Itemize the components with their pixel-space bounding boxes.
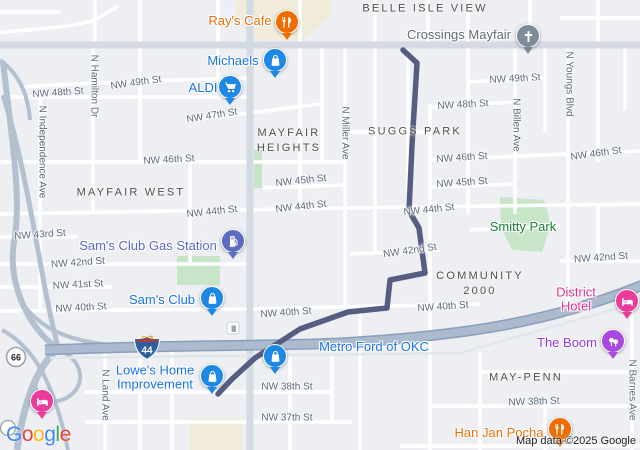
pin-tail (225, 98, 235, 105)
poi-label-sams-club[interactable]: Sam's Club (129, 293, 195, 307)
poi-label-lowes-home-improvement[interactable]: Lowe's Home Improvement (116, 364, 194, 393)
poi-label-sams-club-gas-station[interactable]: Sam's Club Gas Station (79, 239, 217, 253)
gas-icon (227, 235, 240, 248)
poi-pin-the-boom[interactable] (601, 329, 625, 353)
poi-pin-metro-ford-of-okc[interactable] (263, 344, 287, 368)
restaurant-icon (281, 16, 294, 29)
poi-label-district-hotel[interactable]: District Hotel (544, 286, 608, 315)
pin-tail (270, 367, 280, 374)
pin-tail (207, 387, 217, 394)
poi-pin-sams-club[interactable] (200, 286, 224, 310)
poi-pin-crossings-mayfair[interactable] (516, 24, 540, 48)
google-logo[interactable]: Google (6, 423, 71, 447)
poi-label-aldi[interactable]: ALDI (189, 81, 218, 95)
poi-label-crossings-mayfair[interactable]: Crossings Mayfair (407, 28, 511, 42)
cart-icon (224, 81, 237, 94)
poi-label-metro-ford-of-okc[interactable]: Metro Ford of OKC (319, 340, 429, 354)
poi-pin-rays-cafe[interactable] (275, 10, 299, 34)
pin-tail (270, 71, 280, 78)
pin-tail (207, 309, 217, 316)
map-canvas[interactable]: BELLE ISLE VIEWMAYFAIR HEIGHTSSUGGS PARK… (0, 0, 640, 450)
poi-pin-michaels[interactable] (263, 48, 287, 72)
bag-icon (206, 292, 219, 305)
restaurant-icon (554, 423, 567, 436)
cross-icon (522, 30, 535, 43)
pin-tail (228, 252, 238, 259)
poi-label-smitty-park[interactable]: Smitty Park (490, 220, 556, 234)
poi-layer: Ray's CafeCrossings MayfairMichaelsALDIS… (0, 0, 640, 450)
poi-pin-district-hotel[interactable] (615, 289, 639, 313)
poi-label-the-boom[interactable]: The Boom (537, 336, 597, 350)
bed-icon (621, 295, 634, 308)
bag-icon (269, 350, 282, 363)
pin-tail (608, 352, 618, 359)
bed-icon (36, 395, 49, 408)
poi-pin-aldi[interactable] (218, 75, 242, 99)
pin-tail (622, 312, 632, 319)
bag-icon (206, 370, 219, 383)
map-data-attribution: Map data ©2025 Google (516, 435, 636, 447)
pin-tail (523, 47, 533, 54)
poi-pin-lowes-home-improvement[interactable] (200, 364, 224, 388)
poi-pin-sams-club-gas-station[interactable] (221, 229, 245, 253)
poi-pin-hotel-west[interactable] (30, 389, 54, 413)
bag-icon (269, 54, 282, 67)
pin-tail (37, 412, 47, 419)
drink-icon (607, 335, 620, 348)
pin-tail (282, 33, 292, 40)
poi-label-michaels[interactable]: Michaels (207, 54, 258, 68)
poi-label-rays-cafe[interactable]: Ray's Cafe (208, 14, 271, 28)
